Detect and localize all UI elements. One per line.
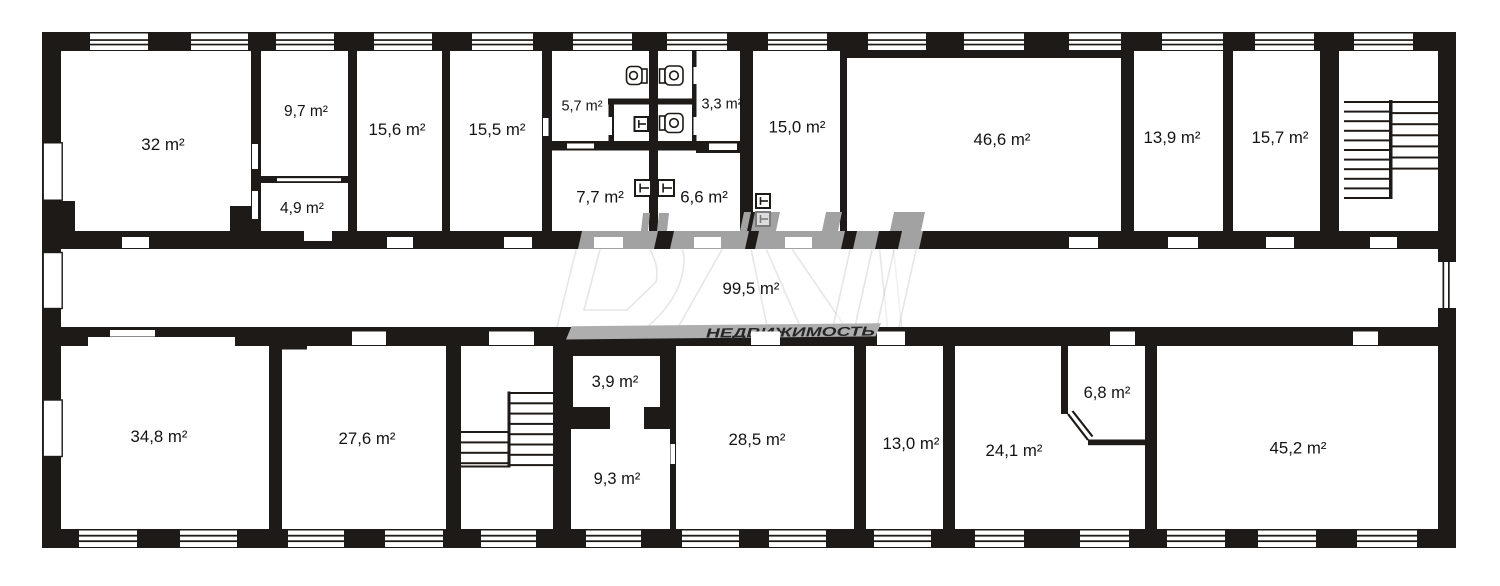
svg-text:3,9 m²: 3,9 m² — [592, 373, 639, 391]
svg-text:15,5 m²: 15,5 m² — [469, 120, 526, 139]
svg-text:27,6 m²: 27,6 m² — [339, 429, 396, 448]
svg-text:34,8 m²: 34,8 m² — [131, 427, 188, 446]
svg-text:9,7 m²: 9,7 m² — [284, 103, 328, 120]
svg-text:15,7 m²: 15,7 m² — [1252, 128, 1309, 147]
svg-text:15,0 m²: 15,0 m² — [769, 118, 826, 137]
svg-text:45,2 m²: 45,2 m² — [1270, 439, 1327, 458]
svg-text:9,3 m²: 9,3 m² — [594, 470, 641, 488]
svg-text:28,5 m²: 28,5 m² — [729, 430, 786, 449]
svg-text:6,6 m²: 6,6 m² — [680, 188, 728, 207]
svg-text:32 m²: 32 m² — [141, 135, 185, 154]
svg-text:99,5 m²: 99,5 m² — [723, 279, 780, 298]
svg-text:7,7 m²: 7,7 m² — [576, 188, 624, 207]
svg-text:5,7 m²: 5,7 m² — [561, 99, 602, 115]
svg-text:3,3 m²: 3,3 m² — [701, 97, 742, 113]
svg-text:НЕДВИЖИМОСТЬ: НЕДВИЖИМОСТЬ — [706, 323, 875, 340]
svg-text:13,9 m²: 13,9 m² — [1144, 128, 1201, 147]
svg-text:6,8 m²: 6,8 m² — [1084, 384, 1131, 402]
svg-text:24,1 m²: 24,1 m² — [986, 441, 1043, 460]
svg-text:13,0 m²: 13,0 m² — [883, 434, 940, 453]
svg-text:46,6 m²: 46,6 m² — [974, 130, 1031, 149]
svg-text:4,9 m²: 4,9 m² — [280, 200, 324, 217]
svg-text:15,6 m²: 15,6 m² — [369, 120, 426, 139]
